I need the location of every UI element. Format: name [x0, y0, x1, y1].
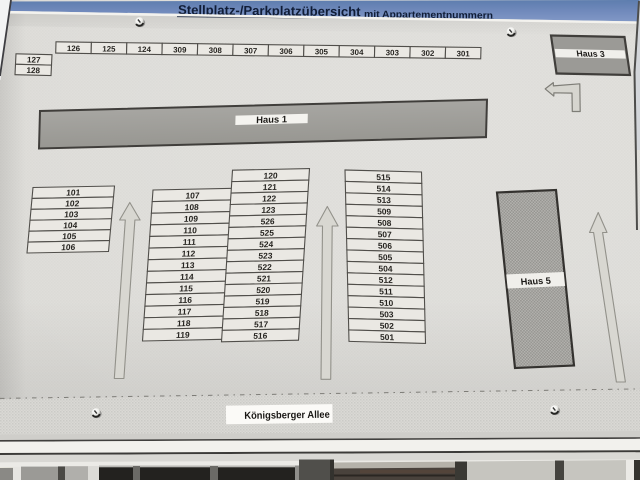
svg-text:523: 523 [258, 250, 273, 260]
svg-text:119: 119 [176, 330, 191, 340]
svg-text:520: 520 [256, 285, 271, 295]
svg-text:107: 107 [185, 190, 200, 200]
svg-text:510: 510 [379, 298, 394, 308]
svg-text:501: 501 [380, 332, 395, 342]
svg-text:513: 513 [377, 195, 392, 205]
svg-text:519: 519 [255, 296, 270, 306]
svg-text:113: 113 [181, 260, 196, 270]
svg-text:101: 101 [66, 187, 81, 197]
svg-text:508: 508 [377, 218, 392, 228]
svg-text:509: 509 [377, 206, 392, 216]
svg-text:124: 124 [138, 45, 152, 54]
svg-text:105: 105 [62, 231, 77, 241]
svg-text:127: 127 [27, 55, 41, 64]
svg-text:505: 505 [378, 252, 393, 262]
svg-text:306: 306 [279, 47, 293, 56]
svg-text:111: 111 [182, 237, 196, 247]
svg-text:517: 517 [254, 319, 269, 329]
svg-text:118: 118 [177, 318, 192, 328]
svg-text:125: 125 [102, 44, 116, 53]
svg-text:108: 108 [184, 202, 199, 212]
svg-text:307: 307 [244, 46, 258, 55]
svg-text:507: 507 [378, 229, 393, 239]
svg-text:512: 512 [379, 275, 394, 285]
svg-text:122: 122 [262, 193, 277, 203]
svg-text:522: 522 [257, 262, 272, 272]
svg-text:515: 515 [376, 172, 391, 182]
svg-text:309: 309 [173, 45, 187, 54]
svg-text:Haus 1: Haus 1 [256, 113, 287, 125]
svg-text:503: 503 [379, 309, 394, 319]
svg-text:109: 109 [184, 214, 199, 224]
svg-text:526: 526 [260, 216, 275, 226]
svg-text:115: 115 [179, 283, 194, 293]
svg-text:123: 123 [261, 205, 276, 215]
svg-text:304: 304 [350, 48, 364, 57]
svg-text:516: 516 [253, 331, 268, 341]
svg-text:521: 521 [257, 273, 272, 283]
svg-text:514: 514 [376, 183, 391, 193]
svg-text:502: 502 [380, 321, 395, 331]
svg-text:302: 302 [421, 49, 435, 58]
svg-text:Königsberger Allee: Königsberger Allee [244, 410, 330, 422]
svg-text:106: 106 [61, 242, 76, 252]
svg-text:518: 518 [254, 308, 269, 318]
svg-text:110: 110 [183, 225, 198, 235]
svg-text:102: 102 [65, 198, 80, 208]
svg-text:305: 305 [315, 47, 329, 56]
svg-text:104: 104 [63, 220, 78, 230]
svg-text:511: 511 [379, 286, 393, 296]
svg-text:128: 128 [26, 66, 40, 75]
svg-text:301: 301 [456, 49, 470, 58]
svg-text:103: 103 [64, 209, 79, 219]
svg-text:126: 126 [67, 44, 81, 53]
svg-text:121: 121 [263, 182, 278, 192]
svg-text:Haus 3: Haus 3 [576, 48, 606, 59]
svg-text:114: 114 [180, 272, 195, 282]
svg-text:308: 308 [209, 46, 223, 55]
svg-text:116: 116 [178, 295, 193, 305]
svg-text:Haus 5: Haus 5 [520, 276, 551, 287]
svg-text:303: 303 [386, 48, 400, 57]
svg-text:120: 120 [263, 170, 278, 180]
svg-text:524: 524 [259, 239, 274, 249]
svg-text:525: 525 [260, 228, 275, 238]
svg-text:504: 504 [378, 263, 393, 273]
svg-text:112: 112 [181, 248, 196, 258]
svg-text:506: 506 [378, 241, 393, 251]
svg-text:117: 117 [177, 306, 192, 316]
